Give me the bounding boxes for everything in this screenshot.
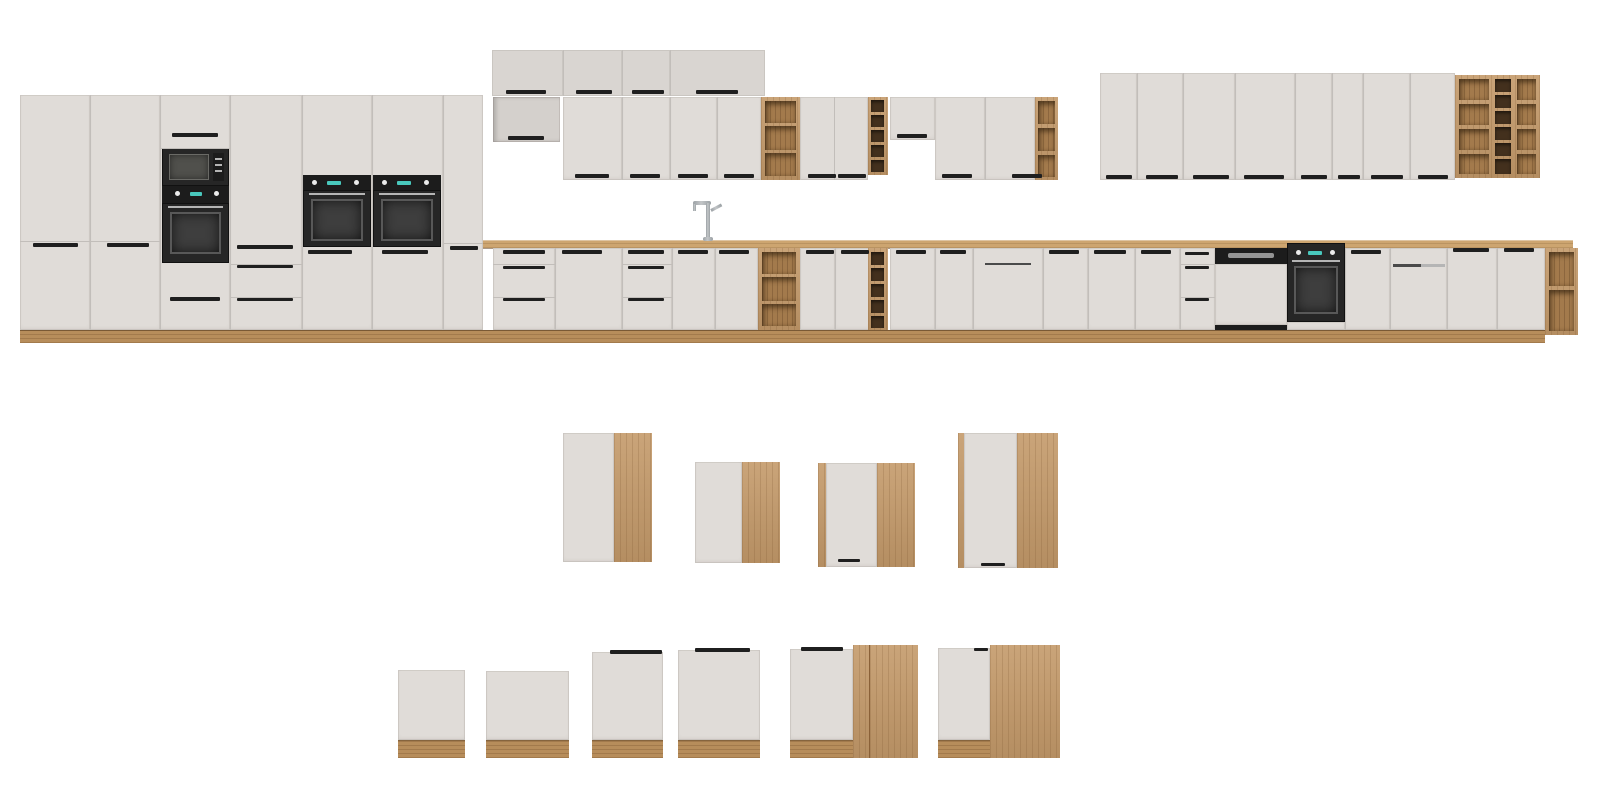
shelf-compartment <box>1517 79 1536 100</box>
door-seam <box>670 50 671 96</box>
door-seam <box>1088 248 1089 330</box>
oven-handle-bar <box>379 193 435 195</box>
base-cabinet <box>835 248 870 330</box>
shelf-compartment <box>1517 154 1536 174</box>
drawer-handle <box>628 266 664 269</box>
door-seam <box>1180 248 1181 330</box>
drawer-handle <box>237 265 293 268</box>
cabinet-handle <box>696 90 738 94</box>
cabinet-handle <box>632 90 664 94</box>
shelf-compartment <box>1517 104 1536 125</box>
shelf-compartment <box>871 160 884 172</box>
oven-knob <box>312 180 317 185</box>
oven-knob <box>382 180 387 185</box>
tall-cabinet <box>20 95 90 330</box>
shelf-compartment <box>871 100 884 112</box>
oven-handle-bar <box>168 206 223 208</box>
base-cabinet <box>935 248 973 330</box>
wall-cabinet-product-front <box>826 463 877 567</box>
shelf-compartment <box>1459 79 1489 100</box>
cabinet-handle <box>1301 175 1327 179</box>
wall-cabinet <box>985 97 1035 180</box>
corner-cabinet-product-front <box>938 648 990 740</box>
kitchen-furniture-render <box>0 0 1600 807</box>
cabinet-handle <box>719 250 749 254</box>
wall-cabinet-product-side <box>614 433 652 562</box>
door-seam <box>985 97 986 180</box>
cabinet-handle <box>562 250 602 254</box>
microwave-screen <box>169 154 209 180</box>
cabinet-handle <box>508 136 544 140</box>
base-cabinet <box>555 248 622 330</box>
base-cabinet-product-plinth <box>592 740 663 758</box>
shelf-compartment <box>871 284 884 297</box>
shelf-compartment <box>1495 143 1511 156</box>
cabinet-handle <box>33 243 78 247</box>
shelf-compartment <box>871 300 884 313</box>
base-cabinet-product-plinth <box>678 740 760 758</box>
cabinet-handle <box>630 174 660 178</box>
faucet-base <box>703 237 713 241</box>
wall-cabinet-product-side <box>877 463 915 567</box>
door-seam <box>935 248 936 330</box>
door-seam <box>20 241 90 242</box>
shelf-compartment <box>1549 252 1574 286</box>
oven-window <box>1294 266 1338 314</box>
base-cabinet-product-front <box>486 671 569 740</box>
shelf-compartment <box>1495 111 1511 124</box>
door-seam <box>622 264 672 265</box>
base-cabinet-product-front <box>398 670 465 740</box>
base-cabinet <box>1447 248 1497 330</box>
door-seam <box>834 97 835 180</box>
shelf-compartment <box>1549 290 1574 331</box>
door-seam <box>302 95 303 330</box>
drawer-handle <box>172 133 218 137</box>
door-seam <box>1345 248 1346 330</box>
cabinet-handle <box>896 250 926 254</box>
oven-window <box>381 199 433 241</box>
handle-groove <box>1393 264 1421 267</box>
oven-knob <box>424 180 429 185</box>
door-seam <box>1390 248 1391 330</box>
wall-cabinet <box>935 97 985 180</box>
shelf-compartment <box>765 126 796 150</box>
wall-cabinet-product-side <box>1017 433 1058 568</box>
cabinet-handle <box>841 250 869 254</box>
oven-knob <box>354 180 359 185</box>
appliance-front-panel <box>1390 248 1447 330</box>
cabinet-handle <box>1094 250 1126 254</box>
base-cabinet <box>1345 248 1390 330</box>
drawer-handle <box>503 298 545 301</box>
base-cabinet <box>1043 248 1088 330</box>
base-cabinet <box>1497 248 1545 330</box>
oven-display <box>397 181 411 185</box>
door-seam <box>1235 73 1236 180</box>
oven-knob <box>1330 250 1335 255</box>
shelf-compartment <box>1495 79 1511 92</box>
microwave-button <box>215 170 222 172</box>
corner-cabinet-product-front <box>790 649 853 740</box>
handle-groove <box>985 263 1031 265</box>
shelf-compartment <box>1459 104 1489 125</box>
door-seam <box>90 241 160 242</box>
tall-drawer-cabinet <box>230 95 302 330</box>
cabinet-handle <box>575 174 609 178</box>
door-seam <box>230 95 231 330</box>
oven-window <box>311 199 363 241</box>
handle-groove <box>1421 264 1445 267</box>
door-seam <box>1497 248 1498 330</box>
cabinet-handle <box>1049 250 1079 254</box>
shelf-compartment <box>1038 101 1055 124</box>
wall-cabinet <box>622 97 670 180</box>
corner-cabinet-product-side <box>870 645 918 758</box>
cabinet-handle <box>450 246 478 250</box>
countertop <box>483 240 1573 248</box>
wall-cabinet <box>717 97 761 180</box>
cabinet-handle <box>382 250 428 254</box>
cabinet-handle <box>1146 175 1178 179</box>
faucet-spout <box>693 204 696 211</box>
oven-knob <box>214 191 219 196</box>
door-seam <box>1447 248 1448 330</box>
cabinet-handle <box>724 174 754 178</box>
shelf-compartment <box>1459 129 1489 150</box>
cabinet-handle <box>610 650 662 654</box>
cabinet-handle <box>942 174 972 178</box>
shelf-compartment <box>762 304 796 326</box>
cabinet-handle <box>940 250 966 254</box>
cabinet-handle <box>695 648 750 652</box>
base-cabinet <box>800 248 835 330</box>
wall-cabinet <box>1235 73 1295 180</box>
shelf-compartment <box>871 252 884 265</box>
cabinet-handle <box>897 134 927 138</box>
cabinet-handle <box>107 243 149 247</box>
base-drawer-unit <box>1180 248 1215 330</box>
cabinet-handle <box>808 174 836 178</box>
microwave-button <box>215 158 222 160</box>
cabinet-handle <box>838 174 866 178</box>
cabinet-handle <box>838 559 860 562</box>
wall-cabinet-product-front <box>563 433 614 562</box>
door-seam <box>1043 248 1044 330</box>
shelf-compartment <box>762 277 796 301</box>
drawer-handle <box>1185 252 1209 255</box>
base-cabinet-product-front <box>678 650 760 740</box>
base-cabinet <box>1135 248 1180 330</box>
door-seam <box>1332 73 1333 180</box>
shelf-compartment <box>1495 95 1511 108</box>
shelf-compartment <box>1459 154 1489 174</box>
shelf-compartment <box>1495 127 1511 140</box>
door-seam <box>1295 73 1296 180</box>
cabinet-handle <box>576 90 612 94</box>
door-seam <box>622 50 623 96</box>
cabinet-handle <box>1351 250 1381 254</box>
oven-knob <box>1296 250 1301 255</box>
cabinet-handle <box>1141 250 1171 254</box>
wall-cabinet <box>1410 73 1455 180</box>
wall-cabinet <box>670 97 717 180</box>
shelf-compartment <box>1038 128 1055 151</box>
door-seam <box>443 95 444 330</box>
wall-cabinet-product-front <box>695 462 742 563</box>
shelf-compartment <box>1495 159 1511 174</box>
cabinet-handle <box>678 250 708 254</box>
door-seam <box>1135 248 1136 330</box>
cabinet-handle <box>1338 175 1360 179</box>
wall-cabinet <box>1363 73 1410 180</box>
door-seam <box>717 97 718 180</box>
door-seam <box>1183 73 1184 180</box>
door-seam <box>715 248 716 330</box>
shelf-compartment <box>871 115 884 127</box>
door-seam <box>622 248 623 330</box>
door-seam <box>1180 264 1215 265</box>
drawer-handle <box>237 245 293 249</box>
cabinet-handle <box>308 250 352 254</box>
drawer-handle <box>1185 266 1209 269</box>
oven-kick-strip <box>1287 322 1345 330</box>
shelf-compartment <box>1517 129 1536 150</box>
shelf-compartment <box>871 145 884 157</box>
wall-cabinet <box>1100 73 1137 180</box>
door-seam <box>160 95 161 330</box>
cabinet-handle <box>801 647 843 651</box>
drawer-handle <box>503 266 545 269</box>
wall-cabinet-product-front <box>964 433 1017 568</box>
door-seam <box>670 97 671 180</box>
base-cabinet-product-plinth <box>398 740 465 758</box>
oven-handle-bar <box>309 193 365 195</box>
oven-handle-bar <box>1292 260 1340 262</box>
drawer-handle <box>237 298 293 301</box>
shelf-compartment <box>871 268 884 281</box>
cabinet-handle <box>1244 175 1284 179</box>
tall-cabinet <box>90 95 160 330</box>
door-seam <box>835 248 836 330</box>
oven-display <box>327 181 341 185</box>
drawer-handle <box>628 298 664 301</box>
corner-cabinet-product-side <box>990 645 1060 758</box>
cabinet-handle <box>1371 175 1403 179</box>
shelf-compartment <box>765 153 796 176</box>
cabinet-handle <box>1453 248 1489 252</box>
door-seam <box>563 50 564 96</box>
corner-cabinet-product-side <box>853 645 870 758</box>
dishwasher-handle <box>1228 253 1274 258</box>
base-drawer-unit <box>493 248 555 330</box>
door-seam <box>555 248 556 330</box>
dishwasher-front-panel <box>1215 264 1287 325</box>
door-seam <box>1363 73 1364 180</box>
drawer-handle <box>170 297 220 301</box>
drawer-handle <box>503 250 545 254</box>
cabinet-handle <box>806 250 834 254</box>
shelf-compartment <box>871 316 884 328</box>
wall-cabinet <box>1295 73 1332 180</box>
door-seam <box>973 248 974 330</box>
base-cabinet <box>672 248 715 330</box>
door-seam <box>160 148 230 149</box>
cabinet-handle <box>1193 175 1229 179</box>
cabinet-handle <box>1106 175 1132 179</box>
wall-cabinet-product-side <box>742 462 780 563</box>
wall-cabinet <box>1183 73 1235 180</box>
sink-base-cabinet <box>715 248 758 330</box>
cabinet-handle <box>981 563 1005 566</box>
cabinet-handle <box>678 174 708 178</box>
shelf-compartment <box>762 252 796 274</box>
oven-window <box>170 212 221 254</box>
cabinet-handle <box>1504 248 1534 252</box>
oven-knob <box>175 191 180 196</box>
appliance-front-panel <box>973 248 1043 330</box>
cabinet-handle <box>1012 174 1042 178</box>
door-seam <box>443 243 483 244</box>
plinth <box>20 330 1545 343</box>
base-cabinet <box>890 248 935 330</box>
door-seam <box>372 95 373 330</box>
base-cabinet-product-plinth <box>938 740 990 758</box>
wall-cabinet-product-edge <box>818 463 826 567</box>
cabinet-handle <box>506 90 546 94</box>
cabinet-handle <box>974 648 988 651</box>
wall-cabinet <box>563 97 622 180</box>
base-cabinet-product-plinth <box>790 740 853 758</box>
wall-cabinet <box>1332 73 1363 180</box>
base-cabinet-product-front <box>592 652 663 740</box>
shelf-compartment <box>871 130 884 142</box>
door-seam <box>1137 73 1138 180</box>
door-seam <box>90 95 91 330</box>
door-seam <box>672 248 673 330</box>
door-seam <box>622 97 623 180</box>
oven-display <box>1308 251 1322 255</box>
drawer-handle <box>1185 298 1209 301</box>
base-cabinet <box>1088 248 1135 330</box>
microwave-button <box>215 164 222 166</box>
tall-cabinet-narrow <box>443 95 483 330</box>
oven-display <box>190 192 202 196</box>
base-drawer-unit <box>622 248 672 330</box>
drawer-handle <box>628 250 664 254</box>
faucet-lever <box>710 204 722 212</box>
door-seam <box>493 264 555 265</box>
cabinet-handle <box>1418 175 1448 179</box>
shelf-compartment <box>765 101 796 123</box>
door-seam <box>1410 73 1411 180</box>
wall-cabinet <box>1137 73 1183 180</box>
base-cabinet-product-plinth <box>486 740 569 758</box>
